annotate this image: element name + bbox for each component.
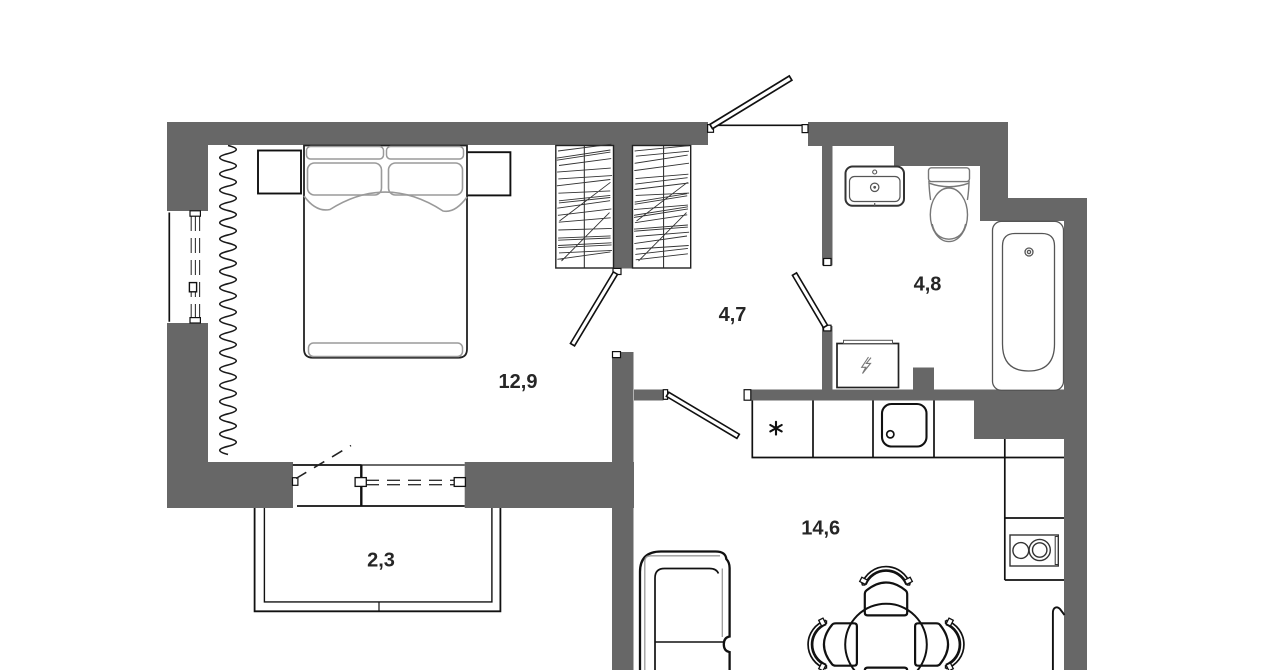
svg-text:4,8: 4,8 (914, 274, 942, 296)
svg-text:2,3: 2,3 (367, 550, 395, 572)
svg-text:14,6: 14,6 (801, 518, 840, 540)
svg-text:12,9: 12,9 (499, 371, 538, 393)
svg-text:4,7: 4,7 (719, 304, 747, 326)
